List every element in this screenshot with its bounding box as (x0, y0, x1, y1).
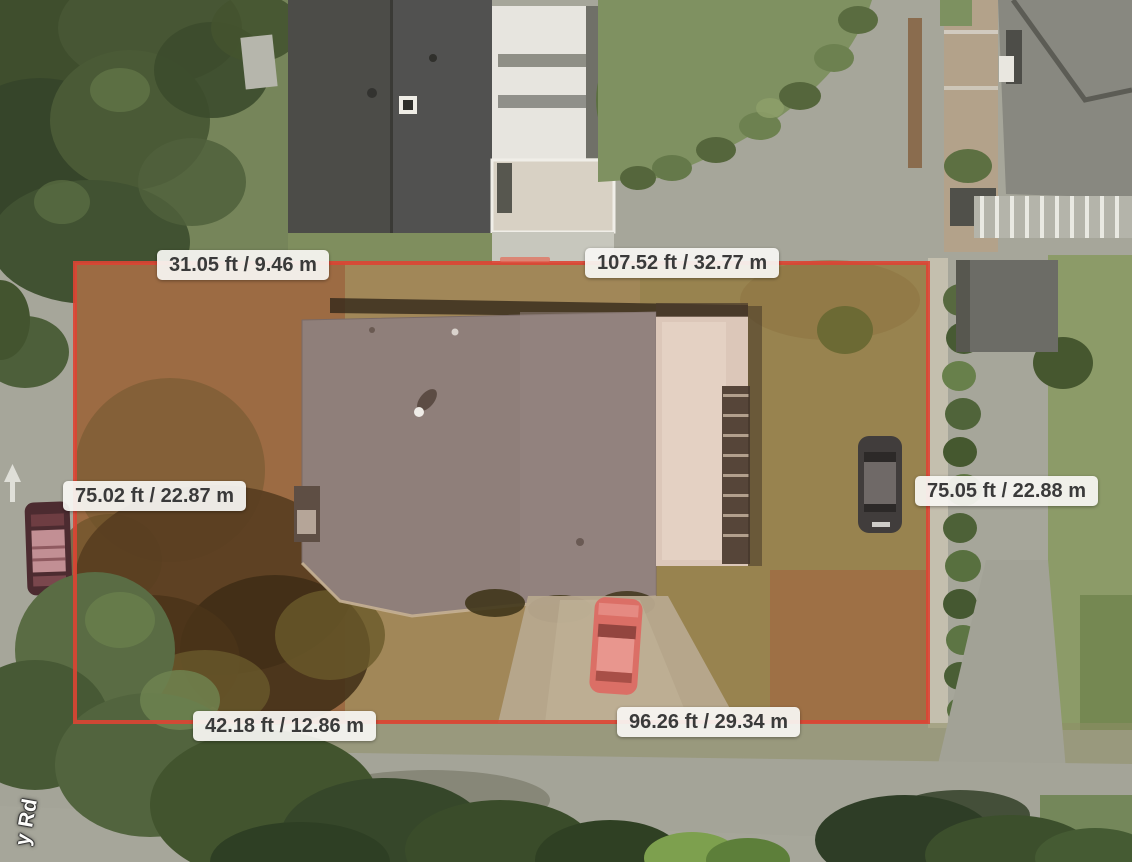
stairs (974, 196, 1132, 238)
measurement-label-bottom-right: 96.26 ft / 29.34 m (617, 707, 800, 737)
neighbor-garage-roof (956, 260, 1058, 352)
neighbor-house-top (240, 0, 628, 233)
lawn-right-shade (1080, 595, 1132, 730)
shrub (817, 306, 873, 354)
measurement-label-top-right: 107.52 ft / 32.77 m (585, 248, 779, 278)
measurement-label-bottom-left: 42.18 ft / 12.86 m (193, 711, 376, 741)
fence (908, 18, 922, 168)
main-house-roof (294, 312, 656, 616)
map-canvas[interactable]: 31.05 ft / 9.46 m 107.52 ft / 32.77 m 75… (0, 0, 1132, 862)
parked-car-red (589, 596, 644, 695)
boundary-vertex-marker (500, 257, 550, 262)
satellite-imagery (0, 0, 1132, 862)
staircase (722, 386, 750, 564)
deck (656, 303, 762, 566)
white-flat-roof (492, 6, 586, 160)
shed-roof (240, 34, 277, 89)
chimney (414, 407, 424, 417)
measurement-label-top-left: 31.05 ft / 9.46 m (157, 250, 329, 280)
parked-car-dark (858, 436, 902, 533)
trees-bottom-right (815, 790, 1132, 862)
measurement-label-right: 75.05 ft / 22.88 m (915, 476, 1098, 506)
measurement-label-left: 75.02 ft / 22.87 m (63, 481, 246, 511)
